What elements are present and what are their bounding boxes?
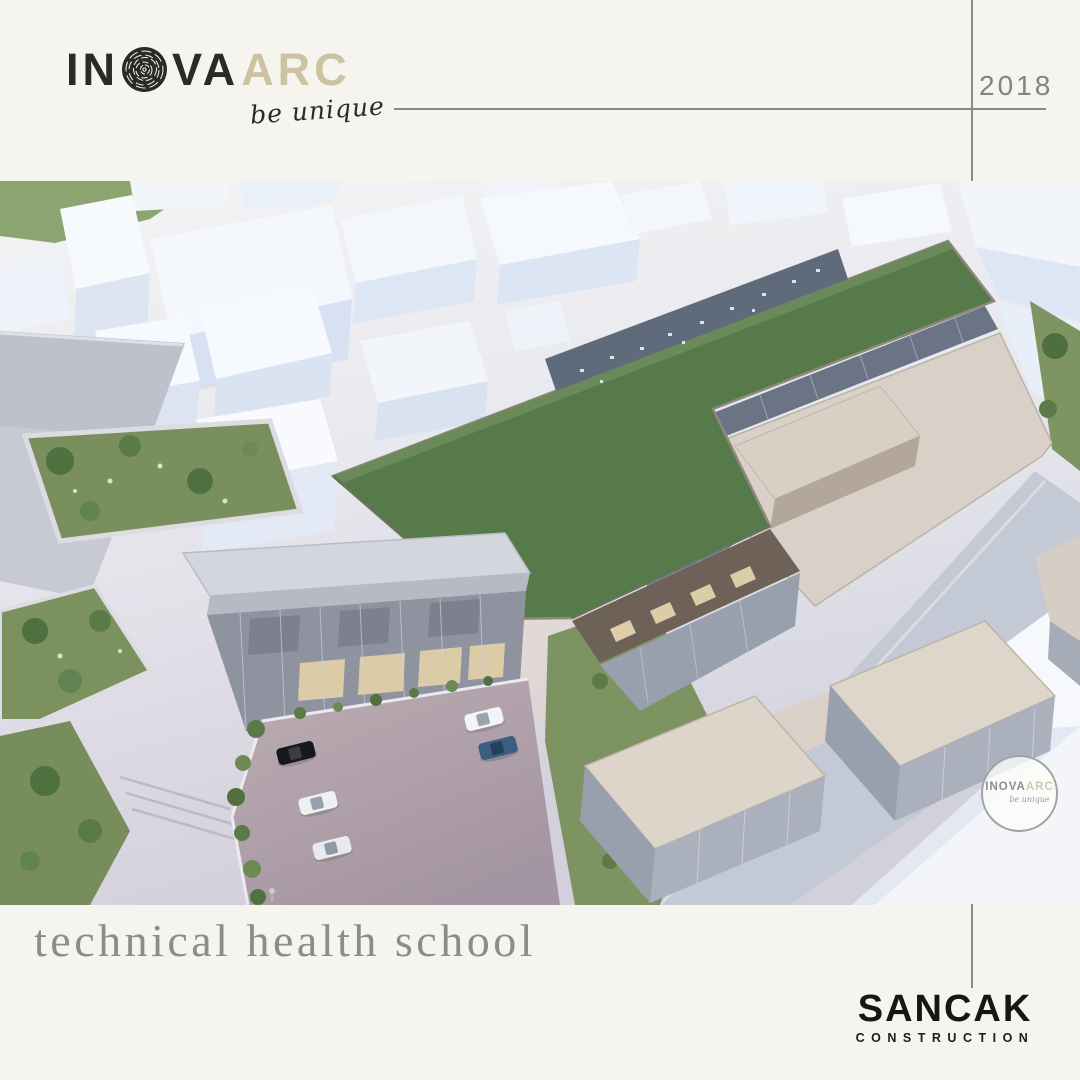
vertical-rule-bottom [971, 904, 973, 988]
render-scene [0, 181, 1080, 905]
sancak-logo: SANCAK CONSTRUCTION [850, 990, 1040, 1045]
year-label: 2018 [979, 70, 1053, 102]
vertical-rule-top [971, 0, 973, 183]
inovaarc-logo: IN VA ARC [66, 46, 351, 93]
watermark-text-arc: ARC [1026, 781, 1054, 793]
project-title: technical health school [34, 914, 536, 967]
horizontal-rule [394, 108, 1046, 110]
watermark-text-inova: INOVA [985, 781, 1026, 793]
logo-text-va: VA [172, 47, 239, 92]
brand-name: SANCAK [850, 990, 1040, 1028]
inovaarc-watermark-badge: INOVAARC be unique [981, 755, 1058, 832]
architectural-render [0, 181, 1080, 905]
watermark-tagline: be unique [1009, 794, 1049, 805]
fingerprint-icon [121, 46, 168, 93]
logo-text-arc: ARC [241, 47, 351, 92]
poster-page: IN VA ARC be unique 2018 [0, 0, 1080, 1080]
logo-text-in: IN [66, 47, 119, 92]
brand-subtitle: CONSTRUCTION [850, 1031, 1040, 1045]
logo-tagline: be unique [249, 91, 386, 129]
